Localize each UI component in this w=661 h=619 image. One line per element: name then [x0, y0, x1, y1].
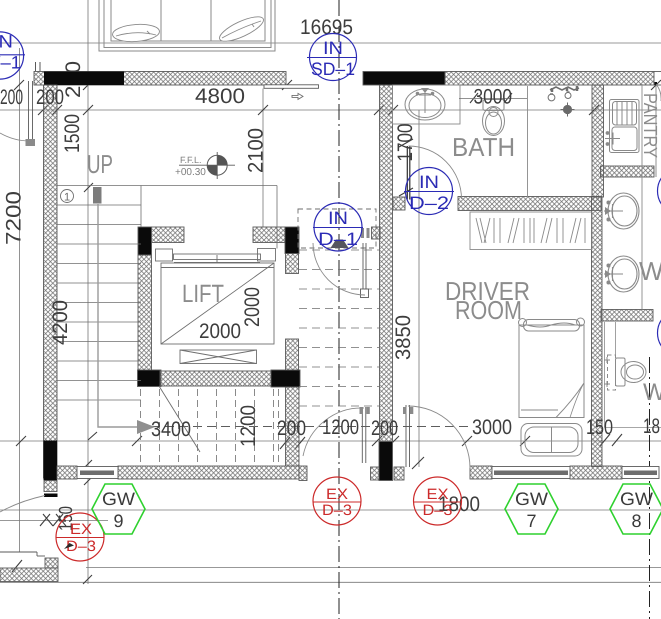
- svg-text:IN: IN: [328, 208, 348, 228]
- svg-text:GW: GW: [102, 489, 135, 509]
- svg-text:1: 1: [64, 192, 70, 204]
- svg-text:4200: 4200: [49, 300, 72, 345]
- svg-text:IN: IN: [0, 32, 13, 52]
- svg-text:GW: GW: [515, 489, 548, 509]
- svg-text:EX: EX: [326, 486, 348, 503]
- svg-text:D–2: D–2: [409, 193, 449, 213]
- svg-text:3400: 3400: [151, 418, 191, 441]
- svg-text:2000: 2000: [241, 287, 264, 327]
- svg-text:2100: 2100: [245, 128, 268, 173]
- svg-text:7200: 7200: [3, 191, 26, 245]
- svg-text:+00.30: +00.30: [175, 167, 206, 178]
- svg-text:D–3: D–3: [423, 502, 453, 519]
- svg-text:200: 200: [0, 86, 23, 109]
- svg-text:W: W: [639, 256, 661, 286]
- svg-text:2000: 2000: [199, 320, 241, 343]
- svg-text:3850: 3850: [392, 315, 415, 360]
- svg-text:1500: 1500: [61, 114, 84, 153]
- svg-text:9: 9: [113, 511, 123, 531]
- svg-text:D–3: D–3: [322, 502, 352, 519]
- svg-text:EX: EX: [70, 521, 92, 538]
- svg-text:16695: 16695: [300, 16, 353, 39]
- svg-text:D–1: D–1: [318, 229, 358, 249]
- svg-text:1700: 1700: [394, 124, 417, 162]
- svg-text:W–1: W–1: [0, 53, 21, 73]
- svg-text:ROOM: ROOM: [455, 295, 522, 325]
- svg-text:IN: IN: [323, 38, 343, 58]
- svg-text:GW: GW: [620, 489, 653, 509]
- svg-text:1200: 1200: [237, 405, 260, 447]
- svg-text:3000: 3000: [474, 86, 513, 109]
- svg-text:7: 7: [526, 511, 536, 531]
- svg-text:150: 150: [586, 416, 613, 439]
- svg-text:LIFT: LIFT: [182, 280, 224, 308]
- svg-text:200: 200: [277, 417, 306, 440]
- svg-text:18: 18: [643, 415, 660, 438]
- svg-text:F.F.L.: F.F.L.: [180, 155, 202, 165]
- svg-text:8: 8: [631, 511, 641, 531]
- svg-text:W: W: [643, 379, 661, 406]
- svg-text:PANTRY: PANTRY: [639, 93, 660, 158]
- svg-text:SD–1: SD–1: [311, 59, 355, 79]
- svg-text:1200: 1200: [322, 416, 359, 439]
- svg-text:200: 200: [371, 417, 398, 440]
- svg-text:BATH: BATH: [452, 132, 515, 162]
- svg-text:4800: 4800: [195, 85, 245, 108]
- svg-text:IN: IN: [419, 172, 439, 192]
- svg-text:UP: UP: [87, 149, 113, 179]
- svg-text:200: 200: [36, 86, 64, 109]
- svg-text:EX: EX: [427, 486, 449, 503]
- svg-text:3000: 3000: [472, 416, 512, 439]
